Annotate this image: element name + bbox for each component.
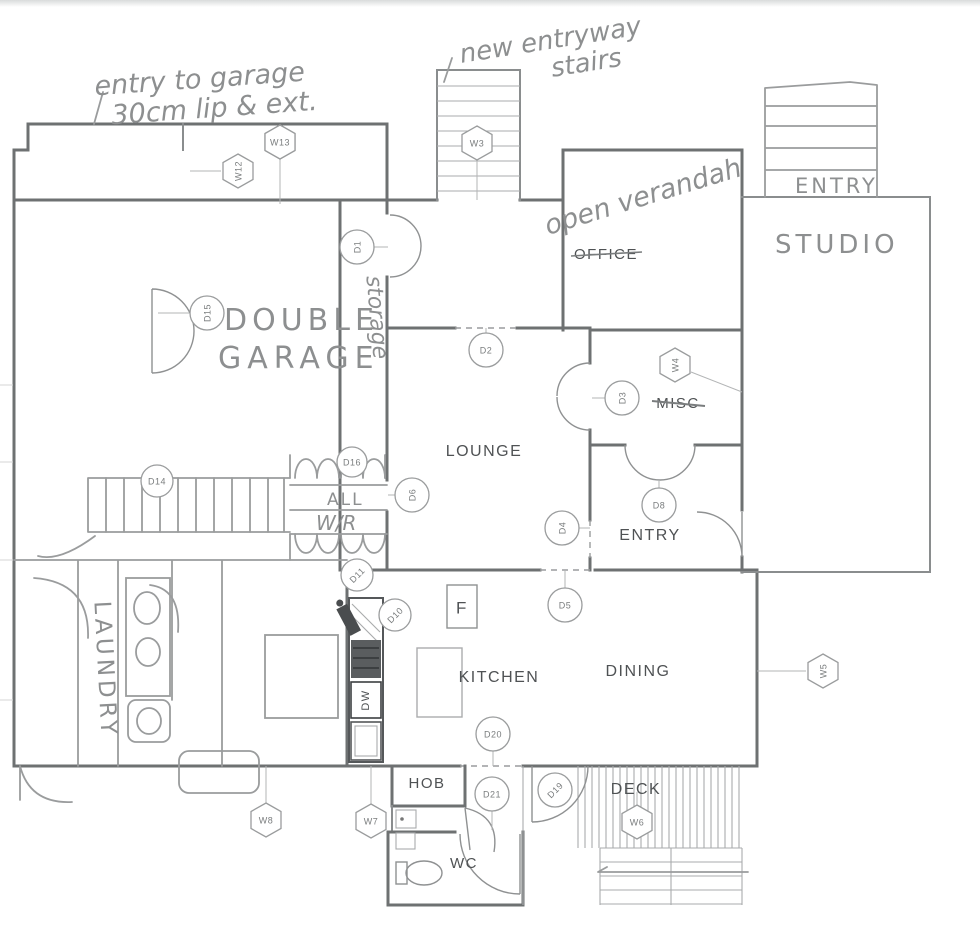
svg-text:D20: D20 bbox=[484, 729, 502, 739]
kitchen-cabinet bbox=[351, 722, 381, 760]
fridge-label: F bbox=[456, 598, 468, 617]
lounge-misc-double-door bbox=[557, 363, 590, 430]
window-marker-w5: W5 bbox=[808, 654, 838, 688]
svg-text:W7: W7 bbox=[364, 816, 379, 826]
kitchen-island bbox=[417, 648, 462, 717]
wardrobe-label: W/R bbox=[316, 511, 356, 535]
open-verandah-note: open verandah bbox=[541, 152, 745, 241]
scan-artifact-band bbox=[0, 0, 980, 7]
svg-text:D2: D2 bbox=[480, 345, 493, 355]
garage-double-door bbox=[152, 289, 194, 373]
floor-plan-drawing: DW F W13 bbox=[0, 0, 980, 929]
door-marker-d1: D1 bbox=[340, 230, 374, 264]
laundry-bath-partitions bbox=[14, 560, 347, 793]
door-marker-d14: D14 bbox=[141, 465, 173, 497]
door-marker-d8: D8 bbox=[642, 488, 676, 522]
dimension-ticks bbox=[0, 385, 13, 700]
kitchen-label: KITCHEN bbox=[459, 669, 540, 686]
deck-label: DECK bbox=[611, 781, 661, 798]
svg-text:W8: W8 bbox=[259, 815, 274, 825]
svg-text:D14: D14 bbox=[148, 476, 166, 486]
window-marker-w12: W12 bbox=[223, 154, 253, 188]
door-marker-d6: D6 bbox=[395, 478, 429, 512]
svg-text:D16: D16 bbox=[343, 457, 361, 467]
entry-double-door bbox=[625, 445, 695, 480]
studio-entry-note: ENTRY bbox=[795, 174, 878, 198]
svg-text:W4: W4 bbox=[670, 358, 680, 373]
svg-text:D1: D1 bbox=[352, 241, 362, 254]
svg-text:D21: D21 bbox=[483, 789, 501, 799]
door-marker-d3: D3 bbox=[605, 381, 639, 415]
svg-text:W12: W12 bbox=[233, 161, 243, 181]
svg-text:D3: D3 bbox=[617, 392, 627, 405]
hob-label: HOB bbox=[408, 775, 445, 792]
hall-label: ALL bbox=[327, 490, 364, 510]
svg-text:W13: W13 bbox=[270, 137, 290, 147]
window-marker-w13: W13 bbox=[265, 125, 295, 159]
garage-entry-note: entry to garage 30cm lip & ext. bbox=[93, 56, 318, 132]
door-marker-d4: D4 bbox=[545, 511, 579, 545]
lounge-label: LOUNGE bbox=[446, 443, 523, 460]
dishwasher: DW bbox=[351, 682, 381, 718]
window-marker-w4: W4 bbox=[660, 348, 690, 382]
svg-text:DOUBLE: DOUBLE bbox=[224, 303, 379, 338]
svg-text:D8: D8 bbox=[653, 500, 666, 510]
door-marker-d19: D19 bbox=[538, 773, 572, 807]
svg-text:D4: D4 bbox=[557, 522, 567, 535]
svg-text:D5: D5 bbox=[559, 600, 572, 610]
door-marker-d2: D2 bbox=[469, 333, 503, 367]
dishwasher-label: DW bbox=[360, 689, 372, 710]
deck-stairs bbox=[598, 848, 748, 905]
hob-side-door bbox=[465, 808, 495, 852]
door-marker-d21: D21 bbox=[475, 777, 509, 811]
double-garage-note: DOUBLE GARAGE bbox=[218, 303, 380, 376]
new-entryway-note: new entryway stairs bbox=[458, 11, 649, 97]
svg-text:W3: W3 bbox=[470, 138, 485, 148]
svg-text:W5: W5 bbox=[818, 664, 828, 679]
entry-label: ENTRY bbox=[619, 527, 680, 544]
storage-french-door bbox=[390, 215, 421, 277]
laundry-note: LAUNDRY bbox=[88, 600, 121, 739]
entry-side-door bbox=[697, 512, 742, 557]
door-marker-d15: D15 bbox=[190, 296, 224, 330]
svg-text:D6: D6 bbox=[407, 489, 417, 502]
floor-plan-scan: DW F W13 bbox=[0, 0, 980, 929]
door-marker-d16: D16 bbox=[337, 447, 367, 477]
svg-text:GARAGE: GARAGE bbox=[218, 341, 380, 376]
wc-label: WC bbox=[450, 855, 478, 872]
studio-note: STUDIO bbox=[775, 230, 899, 260]
door-marker-d11: D11 bbox=[341, 559, 373, 591]
window-marker-w7: W7 bbox=[356, 804, 386, 838]
svg-text:D15: D15 bbox=[202, 304, 212, 322]
dining-label: DINING bbox=[606, 663, 671, 680]
door-marker-d20: D20 bbox=[476, 717, 510, 751]
door-marker-d5: D5 bbox=[548, 588, 582, 622]
window-marker-w8: W8 bbox=[251, 803, 281, 837]
laundry-exterior-door bbox=[20, 766, 72, 802]
fridge: F bbox=[447, 585, 477, 628]
door-marker-d10: D10 bbox=[379, 599, 411, 631]
wc-toilet bbox=[396, 861, 442, 885]
svg-text:W6: W6 bbox=[630, 817, 645, 827]
